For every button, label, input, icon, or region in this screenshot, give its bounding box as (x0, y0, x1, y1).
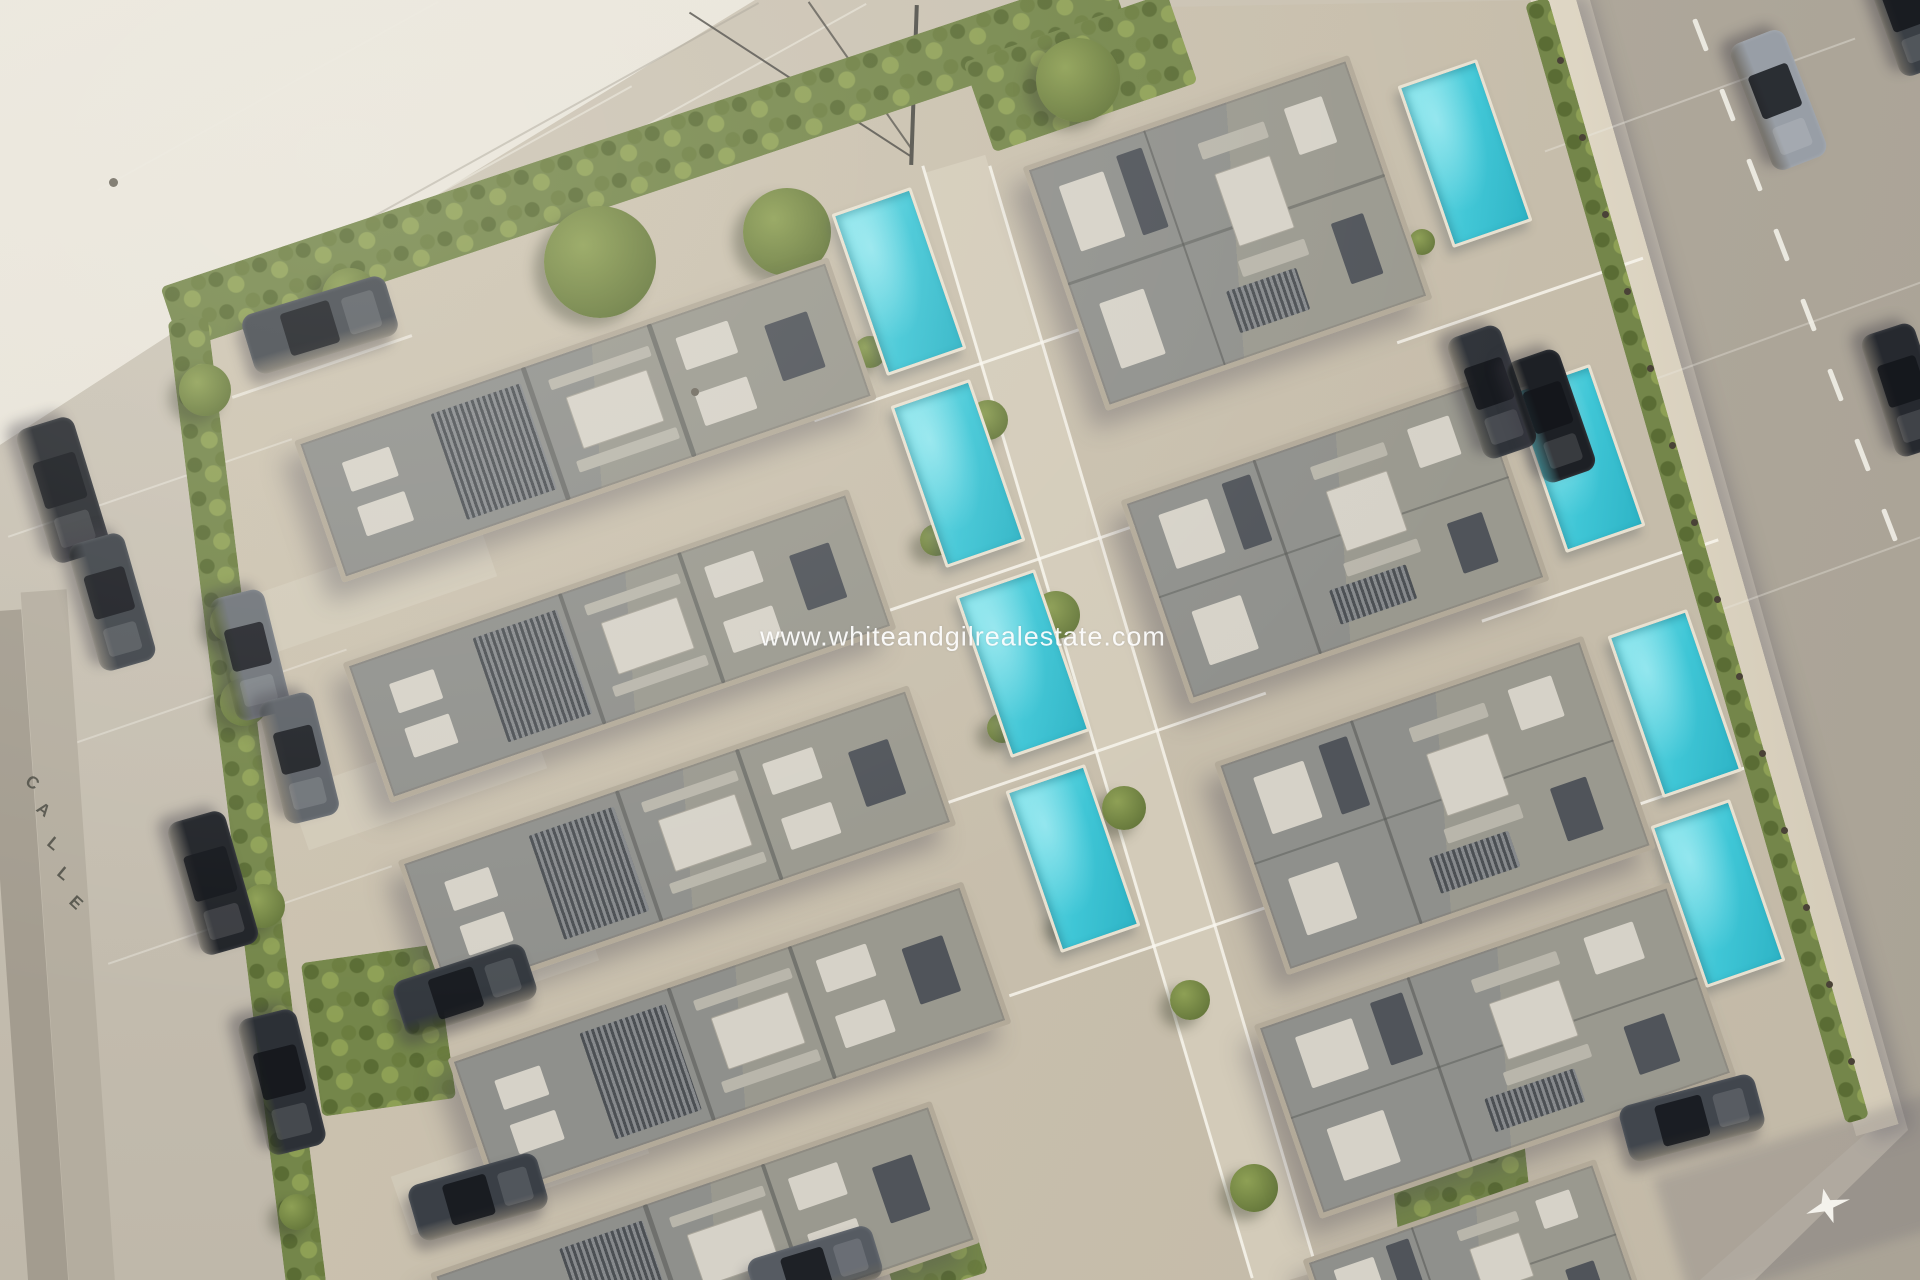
roof-furniture (1508, 674, 1565, 730)
roof-furniture (781, 802, 842, 851)
roof-furniture (494, 1065, 550, 1110)
roof-furniture (1488, 978, 1579, 1060)
car-window (1747, 62, 1802, 120)
roof-furniture (788, 542, 847, 610)
car-window (183, 845, 237, 902)
roof-furniture (872, 1154, 930, 1223)
tree (1036, 38, 1120, 122)
roof-furniture (703, 550, 763, 598)
roof-furniture (834, 999, 896, 1048)
roof-furniture (901, 935, 961, 1005)
roof-furniture (1550, 776, 1604, 841)
roof-furniture (1583, 920, 1644, 974)
roof-furniture (1623, 1012, 1680, 1074)
roof-furniture (1196, 121, 1268, 160)
car-hood-highlight (1543, 432, 1584, 470)
car-window (1654, 1094, 1711, 1147)
wall-bollard (1759, 750, 1766, 757)
roof-furniture (1058, 171, 1125, 252)
car-window (33, 452, 88, 510)
roof-furniture (1287, 861, 1357, 935)
wall-bollard (1624, 288, 1631, 295)
roof-furniture (1115, 147, 1168, 235)
roof-furniture (1406, 414, 1461, 467)
roof-furniture (357, 491, 414, 536)
roof-furniture (388, 669, 443, 713)
roof-furniture (1295, 1017, 1370, 1088)
car-window (779, 1245, 833, 1280)
car-hood-highlight (1712, 1087, 1751, 1129)
roof-furniture (1326, 470, 1408, 551)
roof-furniture (1158, 497, 1226, 568)
car-window (1876, 355, 1920, 409)
wall-bollard (1714, 596, 1721, 603)
car-hood-highlight (1770, 116, 1813, 156)
car-window (1522, 380, 1574, 434)
car-window (253, 1044, 306, 1101)
roof-furniture (1327, 1109, 1402, 1180)
roof-furniture (403, 714, 458, 758)
car-hood-highlight (288, 776, 327, 811)
manhole-cover (109, 178, 118, 187)
car-hood-highlight (483, 956, 523, 998)
bush (279, 1194, 315, 1230)
roof-furniture (1214, 155, 1295, 246)
roof-furniture (1329, 563, 1418, 624)
car-window (441, 1173, 496, 1226)
tree (544, 206, 656, 318)
roof-furniture (1253, 459, 1323, 654)
roof-furniture (472, 609, 592, 742)
roof-furniture (1099, 288, 1166, 369)
car-window (1880, 0, 1920, 33)
roof-furniture (1447, 511, 1499, 573)
roof-furniture (674, 321, 737, 371)
roof-furniture (1425, 732, 1510, 817)
wall-bollard (1579, 134, 1586, 141)
car-hood-highlight (1900, 30, 1920, 65)
car-hood-highlight (1484, 408, 1525, 446)
roof-furniture (1469, 1232, 1534, 1280)
roof-furniture (1318, 735, 1371, 814)
wall-bollard (1691, 519, 1698, 526)
car-hood-highlight (271, 1102, 313, 1141)
roof-furniture (762, 747, 823, 796)
roof-furniture (815, 944, 877, 993)
roof-furniture (509, 1110, 565, 1155)
wall-bollard (1602, 211, 1609, 218)
car-window (1463, 356, 1515, 410)
roof-furniture (529, 806, 650, 940)
roof-furniture (764, 311, 825, 381)
roof-furniture (1252, 760, 1322, 834)
car-hood-highlight (1896, 407, 1920, 444)
manhole-cover (691, 388, 699, 396)
roof-furniture (579, 1004, 701, 1140)
bush (1170, 980, 1210, 1020)
wall-bollard (1736, 673, 1743, 680)
car-window (279, 299, 341, 357)
bush (1102, 786, 1146, 830)
aerial-render-scene: www.whiteandgilrealestate.com CALLE (0, 0, 1920, 1280)
car-hood-highlight (496, 1165, 534, 1207)
roof-furniture (694, 376, 757, 426)
car-hood-highlight (340, 290, 382, 335)
car-window (223, 621, 272, 672)
roof-furniture (1350, 720, 1423, 924)
roof-furniture (1330, 213, 1383, 285)
bush (179, 364, 231, 416)
wall-bollard (1647, 365, 1654, 372)
roof-furniture (1226, 267, 1310, 333)
roof-furniture (1406, 976, 1473, 1161)
roof-furniture (1222, 474, 1273, 550)
car-window (83, 566, 136, 621)
car-hood-highlight (833, 1237, 870, 1277)
wall-bollard (1669, 442, 1676, 449)
wall-bollard (1848, 1058, 1855, 1065)
bush (1230, 1164, 1278, 1212)
roof-furniture (1283, 96, 1337, 156)
car-hood-highlight (102, 620, 143, 657)
car-window (272, 724, 321, 775)
roof-furniture (788, 1162, 848, 1211)
roof-furniture (1333, 1257, 1386, 1280)
roof-furniture (1535, 1189, 1579, 1229)
roof-furniture (848, 738, 907, 807)
roof-furniture (341, 446, 398, 491)
watermark-text: www.whiteandgilrealestate.com (760, 622, 1166, 653)
wall-bollard (1826, 981, 1833, 988)
car-window (427, 966, 485, 1020)
wall-bollard (1803, 904, 1810, 911)
roof-furniture (1191, 594, 1259, 665)
wall-bollard (1781, 827, 1788, 834)
roof-furniture (1237, 238, 1309, 277)
roof-furniture (444, 867, 499, 911)
roof-furniture (1429, 830, 1521, 894)
car-hood-highlight (203, 902, 246, 941)
roof-furniture (1485, 1068, 1586, 1132)
wall-bollard (1557, 57, 1564, 64)
roof-furniture (1565, 1260, 1606, 1280)
